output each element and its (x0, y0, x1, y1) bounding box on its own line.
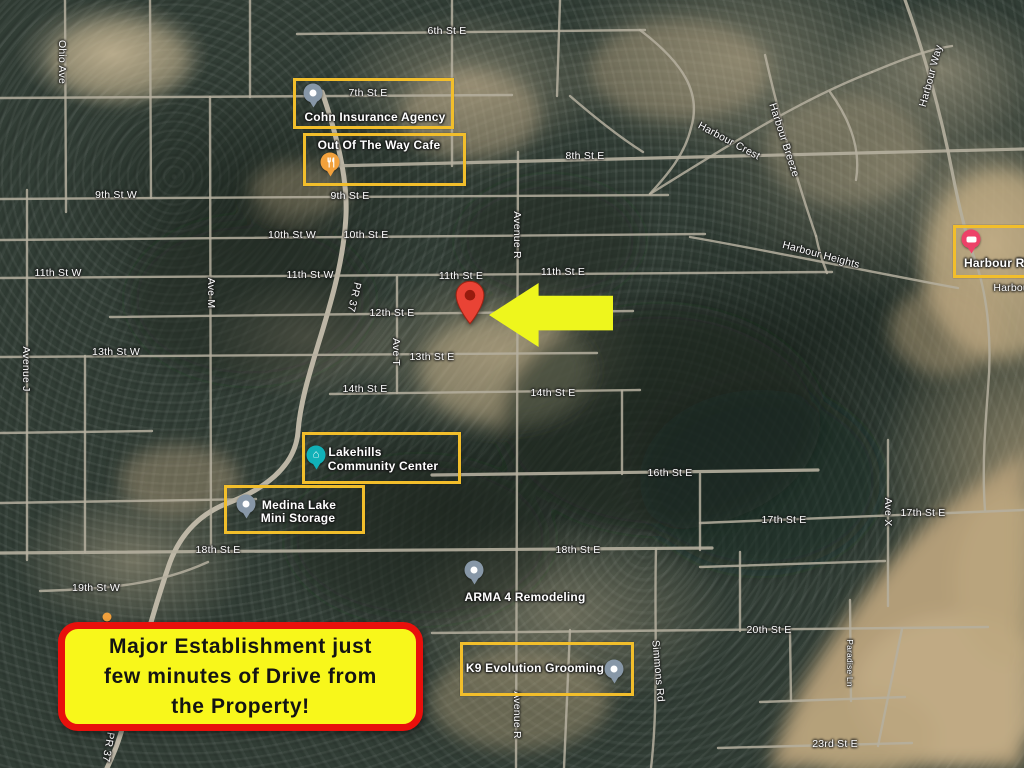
poi-pin-harbour-rv[interactable] (962, 230, 981, 249)
street-label: Avenue R (511, 691, 523, 739)
callout-line-2: few minutes of Drive from (104, 662, 377, 692)
street-label: 12th St E (370, 307, 415, 319)
callout-box: Major Establishment just few minutes of … (58, 622, 423, 731)
callout-line-1: Major Establishment just (109, 632, 372, 662)
callout-line-3: the Property! (171, 692, 310, 722)
street-label: Ohio Ave (56, 40, 68, 84)
street-label: 10th St W (268, 229, 316, 241)
street-label: 11th St W (34, 267, 81, 279)
street-label: 6th St E (428, 25, 467, 37)
street-label: 8th St E (566, 150, 605, 162)
poi-label-k9-evolution-grooming: K9 Evolution Grooming (466, 661, 604, 675)
street-label: 9th St W (95, 189, 137, 201)
street-label: 9th St E (331, 190, 370, 202)
red-map-pin-icon (454, 280, 486, 325)
street-label: 20th St E (747, 624, 792, 636)
poi-pin-cohn-insurance-agency[interactable] (304, 84, 323, 103)
restaurant-icon (325, 157, 335, 167)
street-label: 13th St E (410, 351, 455, 363)
place-icon (611, 666, 618, 673)
street-label: 18th St E (556, 544, 601, 556)
poi-dot[interactable] (103, 613, 112, 622)
poi-label-mini-storage: Mini Storage (261, 511, 335, 525)
street-label: 17th St E (901, 507, 946, 519)
poi-label-out-of-the-way-cafe: Out Of The Way Cafe (318, 138, 441, 152)
street-label: 16th St E (648, 467, 693, 479)
poi-label-community-center: Community Center (328, 459, 439, 473)
community-center-icon: ⌂ (313, 450, 320, 461)
street-label: 18th St E (196, 544, 241, 556)
street-label: 11th St E (541, 266, 585, 278)
poi-label-cohn-insurance-agency: Cohn Insurance Agency (304, 110, 445, 124)
street-label: Avenue J (20, 346, 32, 391)
street-label: Ave M (205, 278, 217, 309)
poi-pin-out-of-the-way-cafe[interactable] (321, 153, 340, 172)
poi-label-lakehills: Lakehills (328, 445, 381, 459)
street-label: Paradise Ln (845, 639, 855, 687)
property-pin[interactable] (454, 280, 486, 330)
map-screenshot: { "colors": { "highlight_box": "#F2BE2B"… (0, 0, 1024, 768)
street-label: 14th St E (531, 387, 576, 399)
poi-label-medina-lake: Medina Lake (262, 498, 336, 512)
street-label: 11th St W (286, 269, 333, 281)
poi-pin-medina-lake-mini-storage[interactable] (237, 495, 256, 514)
street-label: Ave X (882, 498, 894, 527)
street-label: Avenue R (511, 211, 523, 259)
street-label: 23rd St E (812, 738, 858, 750)
poi-label-arma-4-remodeling: ARMA 4 Remodeling (465, 590, 586, 604)
place-icon (243, 501, 250, 508)
poi-pin-lakehills-community-center[interactable]: ⌂ (307, 446, 326, 465)
street-label: Ave T (390, 338, 402, 366)
street-label: 10th St E (344, 229, 389, 241)
street-label: 14th St E (343, 383, 388, 395)
place-icon (310, 90, 317, 97)
place-icon (471, 567, 478, 574)
rv-park-icon (966, 236, 976, 242)
street-label: 13th St W (92, 346, 140, 358)
street-label: 19th St W (72, 582, 120, 594)
street-label: Harbour (993, 282, 1024, 294)
poi-pin-arma-4-remodeling[interactable] (465, 561, 484, 580)
poi-pin-k9-evolution-grooming[interactable] (605, 660, 624, 679)
street-label: 17th St E (762, 514, 807, 526)
